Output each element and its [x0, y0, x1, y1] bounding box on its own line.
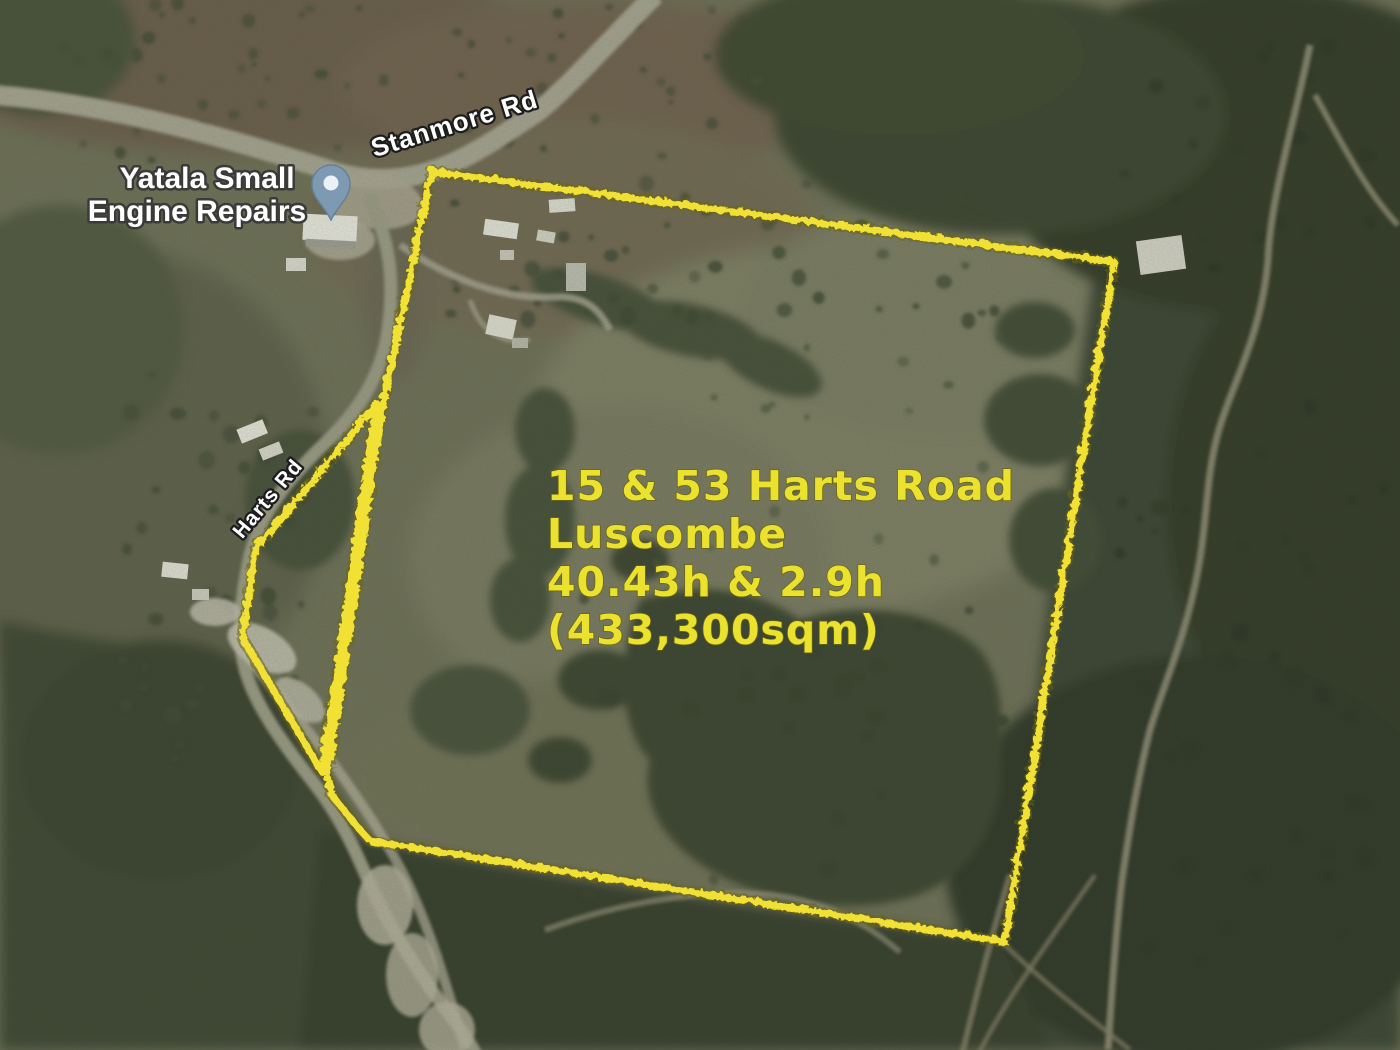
satellite-map-canvas[interactable]: Stanmore Rd Harts Rd Yatala Small Engine…	[0, 0, 1400, 1050]
poi-label[interactable]: Yatala Small Engine Repairs	[88, 162, 306, 228]
annotation-line2: Luscombe	[547, 510, 787, 558]
satellite-map: Stanmore Rd Harts Rd Yatala Small Engine…	[0, 0, 1400, 1050]
poi-label-line1: Yatala Small	[119, 162, 294, 195]
annotation-line3: 40.43h & 2.9h	[547, 558, 885, 606]
annotation-line1: 15 & 53 Harts Road	[547, 462, 1015, 510]
poi-label-line2: Engine Repairs	[88, 195, 306, 228]
pin-center-dot	[324, 176, 339, 191]
annotation-line4: (433,300sqm)	[547, 606, 880, 654]
